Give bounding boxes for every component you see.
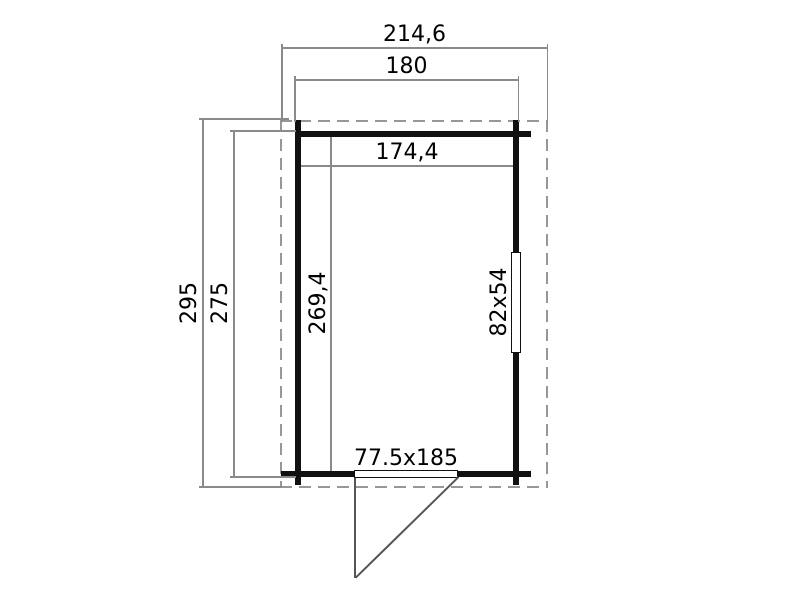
door-swing-line-diagonal (355, 476, 459, 578)
dim-line-outer-width (281, 47, 548, 49)
dim-ext-outer-width-left (281, 44, 283, 122)
dim-line-outer-depth (202, 118, 204, 488)
dim-ext-outer-width-right (547, 44, 549, 122)
dim-line-wall-depth (233, 130, 235, 477)
dim-line-inner-width (301, 165, 513, 167)
roof-outline-bottom (280, 486, 548, 488)
dim-label-wall-width: 180 (294, 55, 519, 79)
dim-label-outer-width: 214,6 (281, 23, 548, 47)
wall-bottom-right-of-door (458, 471, 531, 477)
dim-label-outer-depth: 295 (178, 282, 202, 324)
door-leaf-symbol (354, 470, 458, 478)
dim-ext-outer-depth-bottom (199, 486, 282, 488)
roof-outline-right (546, 120, 548, 488)
dim-ext-wall-width-left (294, 76, 296, 122)
dim-label-inner-width: 174,4 (301, 141, 513, 165)
dim-ext-wall-width-right (518, 76, 520, 122)
dim-ext-wall-depth-bottom (230, 476, 296, 478)
roof-outline-top (280, 120, 548, 122)
roof-outline-left (280, 120, 282, 488)
dim-ext-outer-depth-top (199, 118, 289, 120)
window-size-label: 82x54 (488, 267, 512, 336)
dim-ext-wall-depth-top (230, 130, 296, 132)
window-symbol (511, 252, 521, 353)
floor-plan-canvas: 214,6 180 295 275 174,4 269,4 82x54 77.5… (0, 0, 800, 600)
door-size-label: 77.5x185 (354, 447, 458, 471)
dim-label-wall-depth: 275 (209, 282, 233, 324)
dim-line-wall-width (294, 79, 519, 81)
wall-left (295, 120, 301, 485)
dim-label-inner-depth: 269,4 (307, 272, 331, 335)
door-swing-line-vertical (354, 478, 356, 578)
